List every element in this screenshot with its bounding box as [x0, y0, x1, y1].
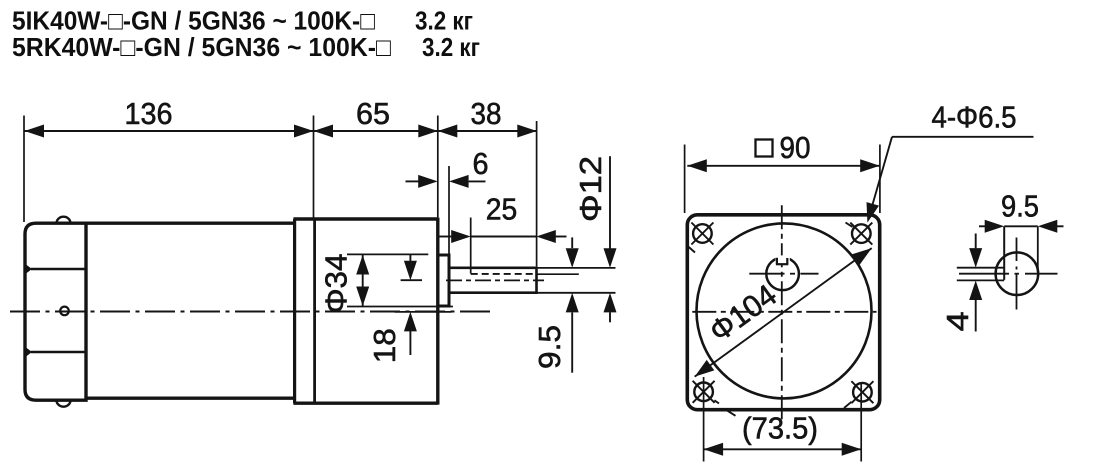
svg-text:65: 65 — [356, 97, 390, 131]
svg-text:38: 38 — [471, 97, 502, 131]
svg-text:4-Φ6.5: 4-Φ6.5 — [932, 101, 1017, 135]
svg-text:9.5: 9.5 — [533, 325, 567, 369]
svg-text:3.2 кг: 3.2 кг — [422, 32, 480, 62]
svg-text:9.5: 9.5 — [1001, 190, 1039, 224]
svg-text:4: 4 — [941, 311, 975, 331]
svg-text:136: 136 — [125, 97, 173, 131]
svg-text:25: 25 — [486, 193, 518, 227]
svg-text:Φ34: Φ34 — [320, 253, 354, 313]
svg-text:Φ12: Φ12 — [574, 156, 608, 222]
svg-text:(73.5): (73.5) — [742, 412, 818, 446]
svg-text:90: 90 — [780, 131, 811, 165]
svg-text:3.2 кг: 3.2 кг — [415, 6, 473, 36]
svg-text:6: 6 — [473, 147, 489, 181]
svg-text:5RK40W-□-GN / 5GN36 ~ 100K-□: 5RK40W-□-GN / 5GN36 ~ 100K-□ — [12, 32, 391, 62]
svg-text:18: 18 — [368, 328, 402, 363]
svg-text:5IK40W-□-GN / 5GN36 ~ 100K-□: 5IK40W-□-GN / 5GN36 ~ 100K-□ — [12, 6, 375, 36]
